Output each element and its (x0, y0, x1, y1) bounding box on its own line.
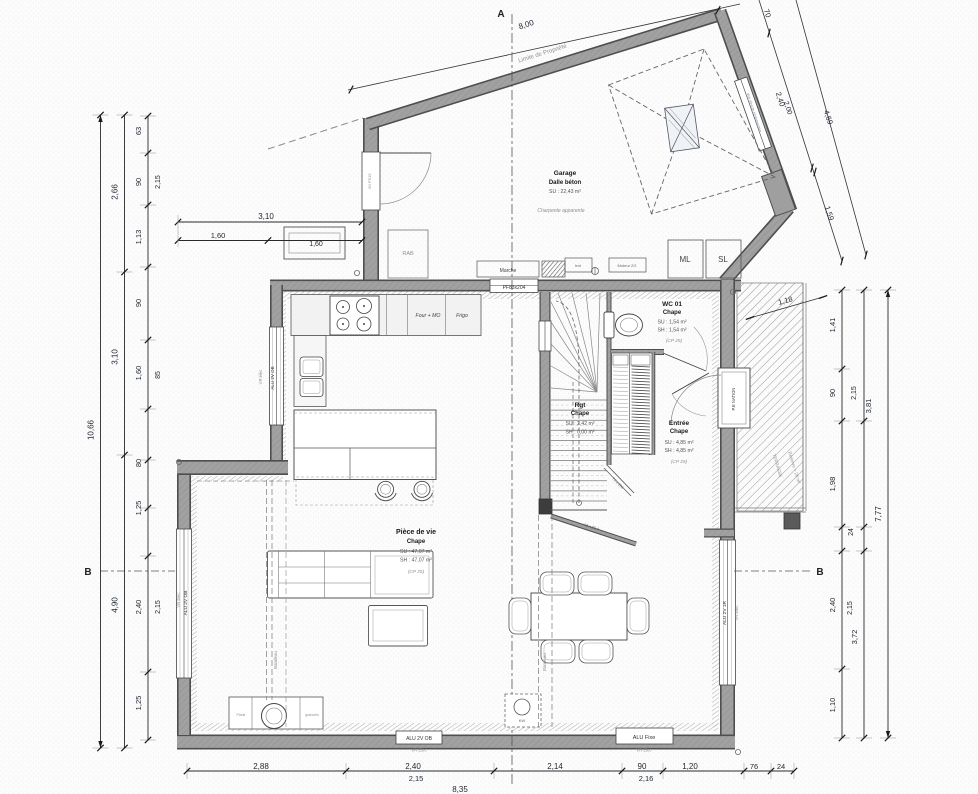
svg-text:Garage: Garage (554, 170, 577, 177)
svg-text:ALU 2V OB: ALU 2V OB (270, 366, 275, 389)
svg-text:Charpente apparente: Charpente apparente (537, 208, 584, 214)
svg-text:1,98: 1,98 (828, 477, 837, 492)
svg-text:Frigo: Frigo (456, 313, 468, 319)
svg-text:90 PS15: 90 PS15 (367, 173, 372, 189)
svg-text:Chape: Chape (407, 539, 426, 545)
svg-text:(CP 25): (CP 25) (671, 459, 688, 465)
svg-text:1,10: 1,10 (828, 698, 837, 713)
svg-text:ALU 2V 1R: ALU 2V 1R (722, 600, 728, 625)
svg-text:RAB: RAB (402, 251, 414, 257)
svg-text:1,20: 1,20 (682, 762, 698, 771)
svg-text:3,72: 3,72 (850, 630, 859, 645)
svg-text:ALU 2V OB: ALU 2V OB (183, 591, 189, 616)
svg-text:4,90: 4,90 (111, 597, 120, 613)
svg-text:2,15: 2,15 (155, 175, 162, 189)
svg-text:SU : 22,43 m²: SU : 22,43 m² (549, 189, 581, 195)
svg-text:76: 76 (750, 762, 758, 771)
svg-text:3,10: 3,10 (111, 349, 120, 365)
svg-text:SU : 2,42 m²: SU : 2,42 m² (565, 421, 594, 427)
svg-text:SH : 0,00 m²: SH : 0,00 m² (565, 430, 594, 436)
svg-text:24: 24 (777, 762, 785, 771)
svg-text:Marche: Marche (500, 268, 517, 274)
svg-text:1,25: 1,25 (134, 696, 143, 711)
svg-text:SL: SL (718, 255, 728, 264)
svg-text:SU : 47,07 m²: SU : 47,07 m² (400, 549, 432, 555)
svg-text:1,25: 1,25 (134, 501, 143, 516)
svg-text:SU : 1,54 m²: SU : 1,54 m² (657, 320, 686, 326)
svg-text:Chape: Chape (571, 411, 590, 417)
svg-text:(CP 25): (CP 25) (408, 569, 425, 575)
svg-text:Dalle béton: Dalle béton (549, 180, 582, 186)
svg-text:KW: KW (519, 718, 526, 723)
svg-text:90: 90 (134, 178, 143, 186)
svg-text:Entrée: Entrée (669, 420, 690, 427)
svg-text:ML: ML (679, 255, 691, 264)
svg-text:VR Elec: VR Elec (636, 748, 651, 753)
svg-text:3,10: 3,10 (258, 212, 274, 221)
svg-text:7,77: 7,77 (874, 506, 883, 522)
svg-text:1,60: 1,60 (134, 366, 143, 381)
svg-text:2,40: 2,40 (405, 762, 421, 771)
svg-text:SH : 4,85 m²: SH : 4,85 m² (664, 448, 693, 454)
svg-text:ALU 2V OB: ALU 2V OB (406, 736, 433, 742)
svg-text:Bandeau: Bandeau (542, 653, 547, 672)
svg-text:2,15: 2,15 (851, 386, 858, 400)
svg-text:2,40: 2,40 (134, 600, 143, 615)
svg-text:SU : 4,85 m²: SU : 4,85 m² (664, 440, 693, 446)
svg-text:P.E NATION: P.E NATION (731, 388, 736, 411)
svg-text:B: B (816, 567, 823, 578)
svg-text:Four + MO: Four + MO (416, 313, 441, 319)
svg-text:SH : 47,07 m²: SH : 47,07 m² (400, 558, 432, 564)
svg-text:2,15: 2,15 (155, 600, 162, 614)
svg-text:VR Elec: VR Elec (411, 748, 426, 753)
svg-text:PF83x204: PF83x204 (503, 285, 526, 291)
svg-text:VR Elec: VR Elec (734, 605, 739, 620)
svg-text:WC 01: WC 01 (662, 301, 682, 308)
svg-text:Pôele: Pôele (237, 713, 246, 717)
svg-text:2,14: 2,14 (547, 762, 563, 771)
svg-text:2,66: 2,66 (111, 184, 120, 200)
svg-text:2,16: 2,16 (639, 774, 654, 783)
svg-text:SH : 1,54 m²: SH : 1,54 m² (657, 328, 686, 334)
svg-text:8,35: 8,35 (452, 785, 468, 794)
svg-text:granulés: granulés (305, 713, 319, 717)
svg-text:Pièce de vie: Pièce de vie (396, 529, 436, 536)
svg-text:3,81: 3,81 (864, 399, 873, 414)
svg-text:2,15: 2,15 (847, 601, 854, 615)
svg-text:1,13: 1,13 (134, 230, 143, 245)
svg-text:2,40: 2,40 (828, 598, 837, 613)
svg-text:90: 90 (638, 762, 647, 771)
svg-text:24: 24 (848, 528, 855, 536)
svg-text:2,88: 2,88 (253, 762, 269, 771)
svg-text:1,41: 1,41 (828, 318, 837, 333)
svg-text:1,60: 1,60 (211, 231, 226, 240)
svg-text:10,66: 10,66 (87, 419, 96, 440)
svg-text:80: 80 (134, 459, 143, 467)
svg-text:A: A (497, 9, 504, 20)
svg-text:Rgt: Rgt (575, 402, 587, 409)
svg-text:Moteur 2G: Moteur 2G (618, 263, 637, 268)
svg-text:Chape: Chape (670, 429, 689, 435)
svg-text:B: B (84, 567, 91, 578)
svg-text:90: 90 (134, 299, 143, 307)
svg-text:VR Elec: VR Elec (176, 592, 181, 607)
svg-text:2,15: 2,15 (409, 774, 424, 783)
svg-text:(CP 25): (CP 25) (666, 338, 683, 344)
svg-text:63: 63 (134, 127, 143, 135)
svg-text:ALU Fixe: ALU Fixe (633, 735, 656, 741)
svg-text:tmt: tmt (575, 263, 581, 268)
svg-text:1,60: 1,60 (309, 241, 323, 248)
svg-text:85: 85 (155, 371, 162, 379)
svg-text:VR élec: VR élec (258, 370, 263, 385)
svg-text:Chape: Chape (663, 310, 682, 316)
svg-text:Bandeau: Bandeau (273, 651, 278, 670)
svg-text:90: 90 (828, 389, 837, 397)
